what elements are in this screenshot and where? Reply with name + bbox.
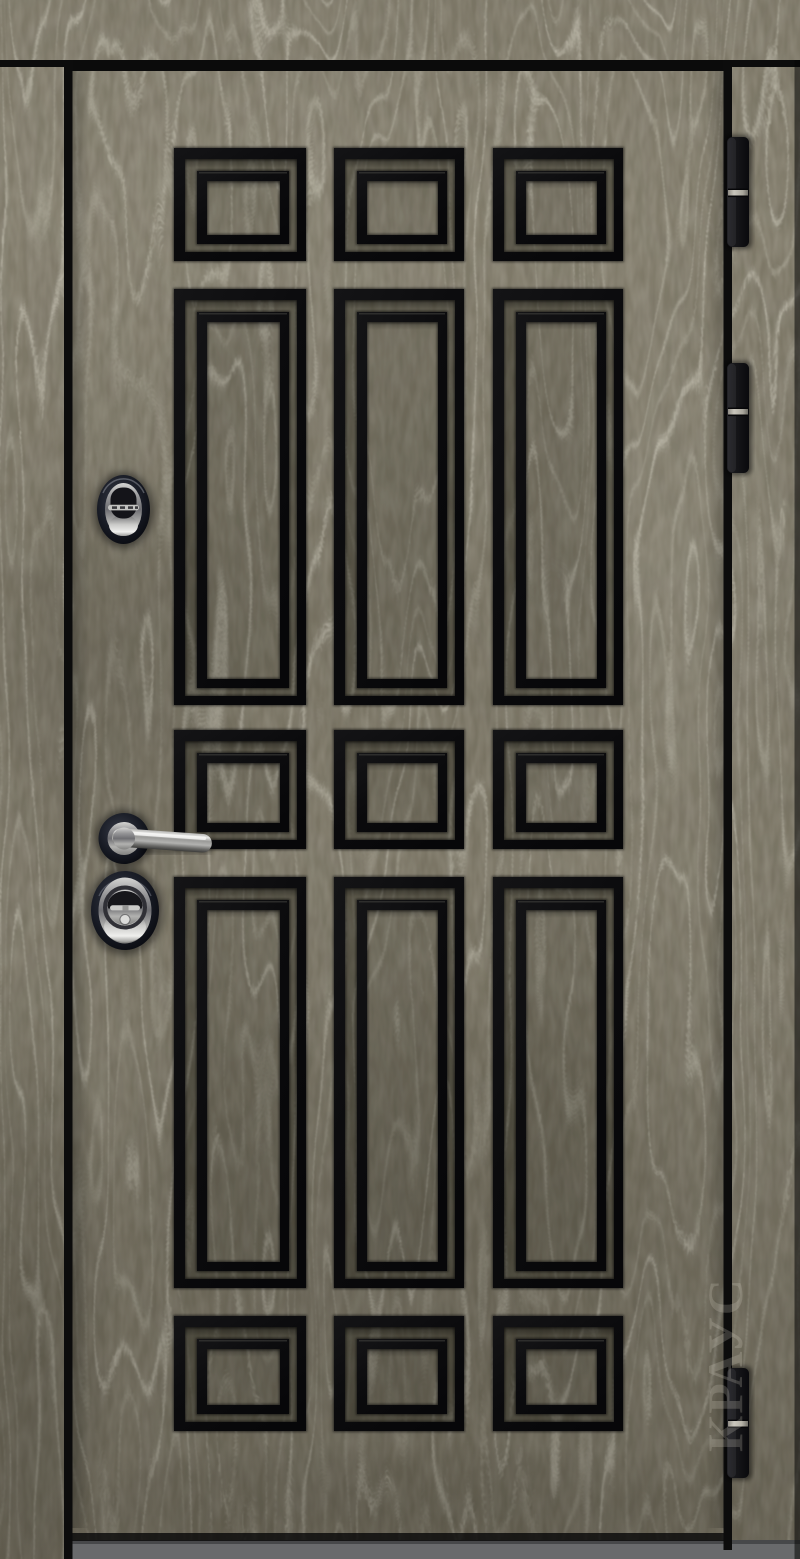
svg-text:КРАУС: КРАУС (697, 1277, 753, 1452)
